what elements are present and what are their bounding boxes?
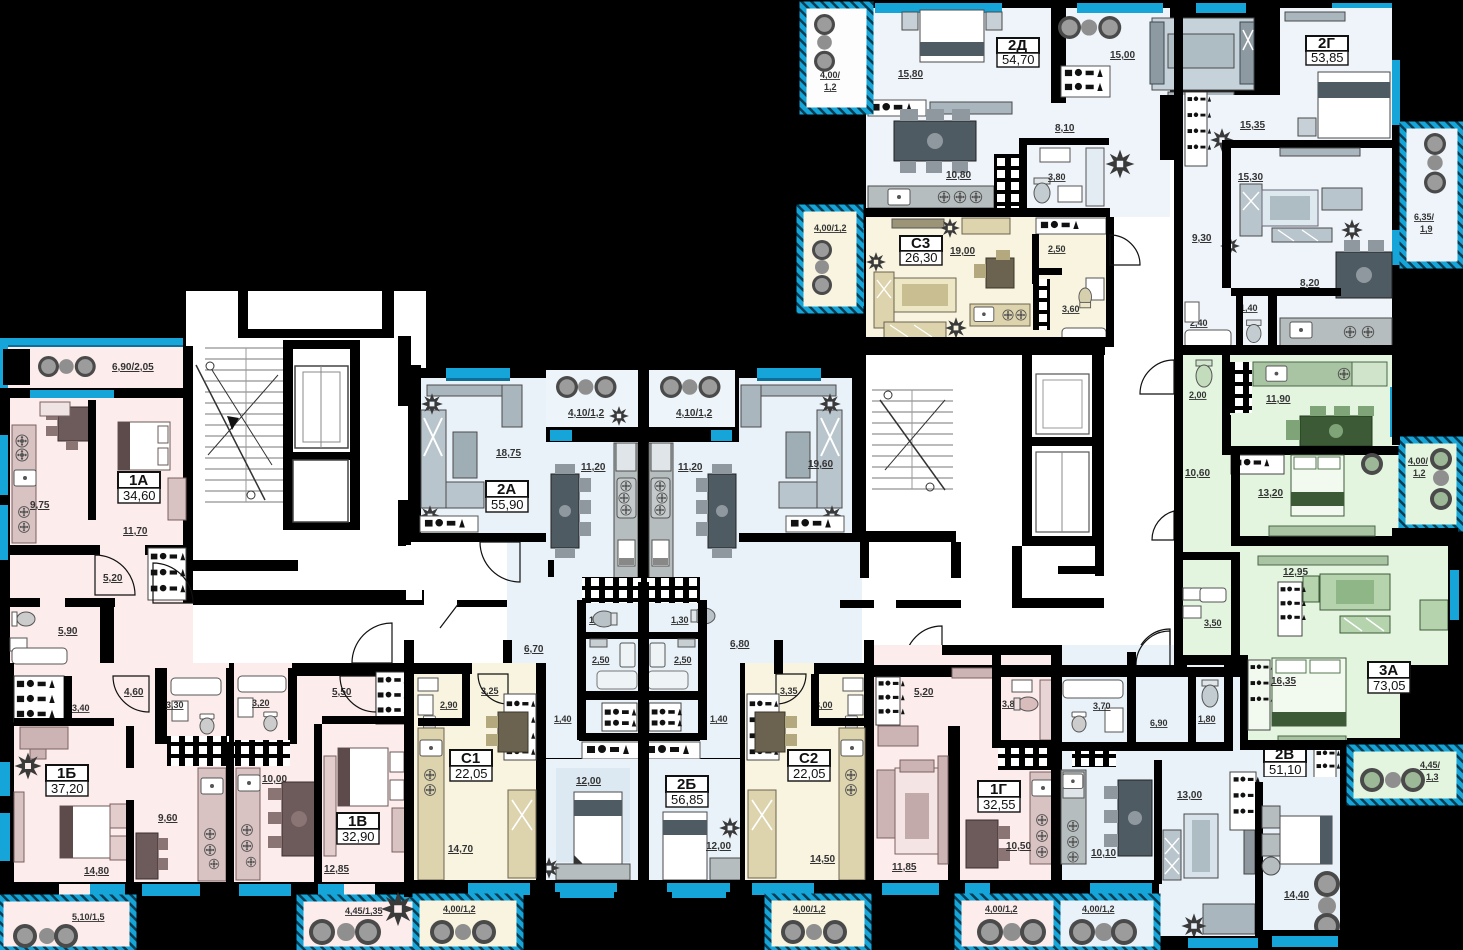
svg-text:6,70: 6,70	[524, 644, 544, 655]
svg-text:11,85: 11,85	[892, 862, 917, 873]
svg-text:4,10/1,2: 4,10/1,2	[676, 408, 713, 419]
svg-text:1В: 1В	[348, 813, 367, 830]
svg-text:9,60: 9,60	[158, 813, 178, 824]
svg-text:16,35: 16,35	[1271, 676, 1296, 687]
svg-text:9,30: 9,30	[1192, 233, 1212, 244]
svg-text:22,05: 22,05	[455, 766, 488, 781]
svg-text:15,00: 15,00	[1110, 50, 1135, 61]
svg-text:5,20: 5,20	[103, 573, 123, 584]
svg-text:1,2: 1,2	[824, 82, 837, 92]
svg-text:3,60: 3,60	[1062, 304, 1080, 314]
svg-text:19,00: 19,00	[950, 246, 975, 257]
svg-text:3,20: 3,20	[252, 698, 270, 708]
svg-text:3,50: 3,50	[1204, 618, 1222, 628]
svg-text:1,9: 1,9	[1420, 224, 1433, 234]
svg-text:1,80: 1,80	[1198, 714, 1216, 724]
svg-text:26,30: 26,30	[905, 250, 938, 265]
svg-text:3,35: 3,35	[780, 686, 798, 696]
svg-text:13,00: 13,00	[1177, 790, 1202, 801]
svg-text:8,20: 8,20	[1300, 278, 1320, 289]
svg-text:5,20: 5,20	[914, 687, 934, 698]
svg-text:12,00: 12,00	[706, 841, 731, 852]
svg-text:37,20: 37,20	[51, 781, 84, 796]
svg-text:15,35: 15,35	[1240, 120, 1265, 131]
svg-text:2,90: 2,90	[440, 700, 458, 710]
svg-text:56,85: 56,85	[671, 792, 704, 807]
svg-text:1,3: 1,3	[1426, 772, 1439, 782]
svg-text:4,00/1,2: 4,00/1,2	[985, 904, 1018, 914]
svg-text:11,20: 11,20	[678, 462, 703, 473]
svg-text:2,50: 2,50	[1048, 244, 1066, 254]
svg-text:32,55: 32,55	[983, 797, 1016, 812]
svg-text:1Г: 1Г	[990, 781, 1007, 798]
svg-text:1,40: 1,40	[710, 714, 728, 724]
svg-text:4,00/: 4,00/	[1408, 456, 1429, 466]
svg-text:11,20: 11,20	[581, 462, 606, 473]
svg-text:73,05: 73,05	[1373, 678, 1406, 693]
svg-text:3А: 3А	[1379, 662, 1398, 679]
svg-text:4,10/1,2: 4,10/1,2	[568, 408, 605, 419]
svg-text:54,70: 54,70	[1002, 52, 1035, 67]
svg-text:1,30: 1,30	[671, 615, 689, 625]
svg-text:22,05: 22,05	[793, 766, 826, 781]
svg-text:10,60: 10,60	[1185, 468, 1210, 479]
svg-text:С2: С2	[799, 750, 818, 767]
svg-text:13,20: 13,20	[1258, 488, 1283, 499]
svg-text:10,10: 10,10	[1091, 848, 1116, 859]
svg-text:4,00/: 4,00/	[820, 70, 841, 80]
svg-text:6,80: 6,80	[730, 639, 750, 650]
svg-text:15,30: 15,30	[1238, 172, 1263, 183]
svg-text:55,90: 55,90	[491, 497, 524, 512]
svg-text:2,50: 2,50	[592, 655, 610, 665]
svg-text:9,75: 9,75	[30, 500, 50, 511]
svg-text:14,70: 14,70	[448, 844, 473, 855]
svg-text:4,00/1,2: 4,00/1,2	[443, 904, 476, 914]
svg-text:4,00/1,2: 4,00/1,2	[793, 904, 826, 914]
svg-text:2Б: 2Б	[677, 776, 696, 793]
svg-text:5,90: 5,90	[58, 626, 78, 637]
svg-text:3,40: 3,40	[72, 703, 90, 713]
svg-text:11,70: 11,70	[123, 526, 148, 537]
svg-text:12,85: 12,85	[324, 864, 349, 875]
svg-text:4,00/1,2: 4,00/1,2	[814, 223, 847, 233]
svg-text:4,00/1,2: 4,00/1,2	[1082, 904, 1115, 914]
svg-text:1А: 1А	[129, 472, 148, 489]
svg-text:2,50: 2,50	[674, 655, 692, 665]
svg-text:4,45/: 4,45/	[1420, 760, 1441, 770]
svg-text:14,50: 14,50	[810, 854, 835, 865]
svg-text:1,40: 1,40	[554, 714, 572, 724]
svg-text:3,30: 3,30	[166, 700, 184, 710]
svg-text:15,80: 15,80	[898, 69, 923, 80]
svg-text:2А: 2А	[497, 481, 516, 498]
svg-text:53,85: 53,85	[1311, 50, 1344, 65]
svg-text:С1: С1	[461, 750, 480, 767]
svg-text:2,00: 2,00	[1189, 390, 1207, 400]
svg-text:6,35/: 6,35/	[1414, 212, 1435, 222]
svg-text:3,80: 3,80	[1048, 172, 1066, 182]
svg-text:12,00: 12,00	[576, 776, 601, 787]
svg-text:19,60: 19,60	[808, 459, 833, 470]
svg-text:1,2: 1,2	[1413, 468, 1426, 478]
svg-text:4,60: 4,60	[124, 687, 144, 698]
svg-text:3,70: 3,70	[1093, 701, 1111, 711]
svg-text:6,90/2,05: 6,90/2,05	[112, 362, 154, 373]
svg-text:14,40: 14,40	[1284, 890, 1309, 901]
svg-text:6,90: 6,90	[1150, 718, 1168, 728]
svg-text:8,10: 8,10	[1055, 123, 1075, 134]
svg-text:11,90: 11,90	[1266, 394, 1291, 405]
svg-text:18,75: 18,75	[496, 448, 521, 459]
svg-text:5,10/1,5: 5,10/1,5	[72, 912, 105, 922]
svg-text:32,90: 32,90	[342, 829, 375, 844]
svg-text:4,45/1,35: 4,45/1,35	[345, 906, 383, 916]
svg-text:10,80: 10,80	[946, 170, 971, 181]
svg-text:51,10: 51,10	[1269, 762, 1302, 777]
svg-text:14,80: 14,80	[84, 866, 109, 877]
svg-text:1Б: 1Б	[57, 765, 76, 782]
svg-text:10,50: 10,50	[1006, 841, 1031, 852]
svg-text:34,60: 34,60	[123, 488, 156, 503]
